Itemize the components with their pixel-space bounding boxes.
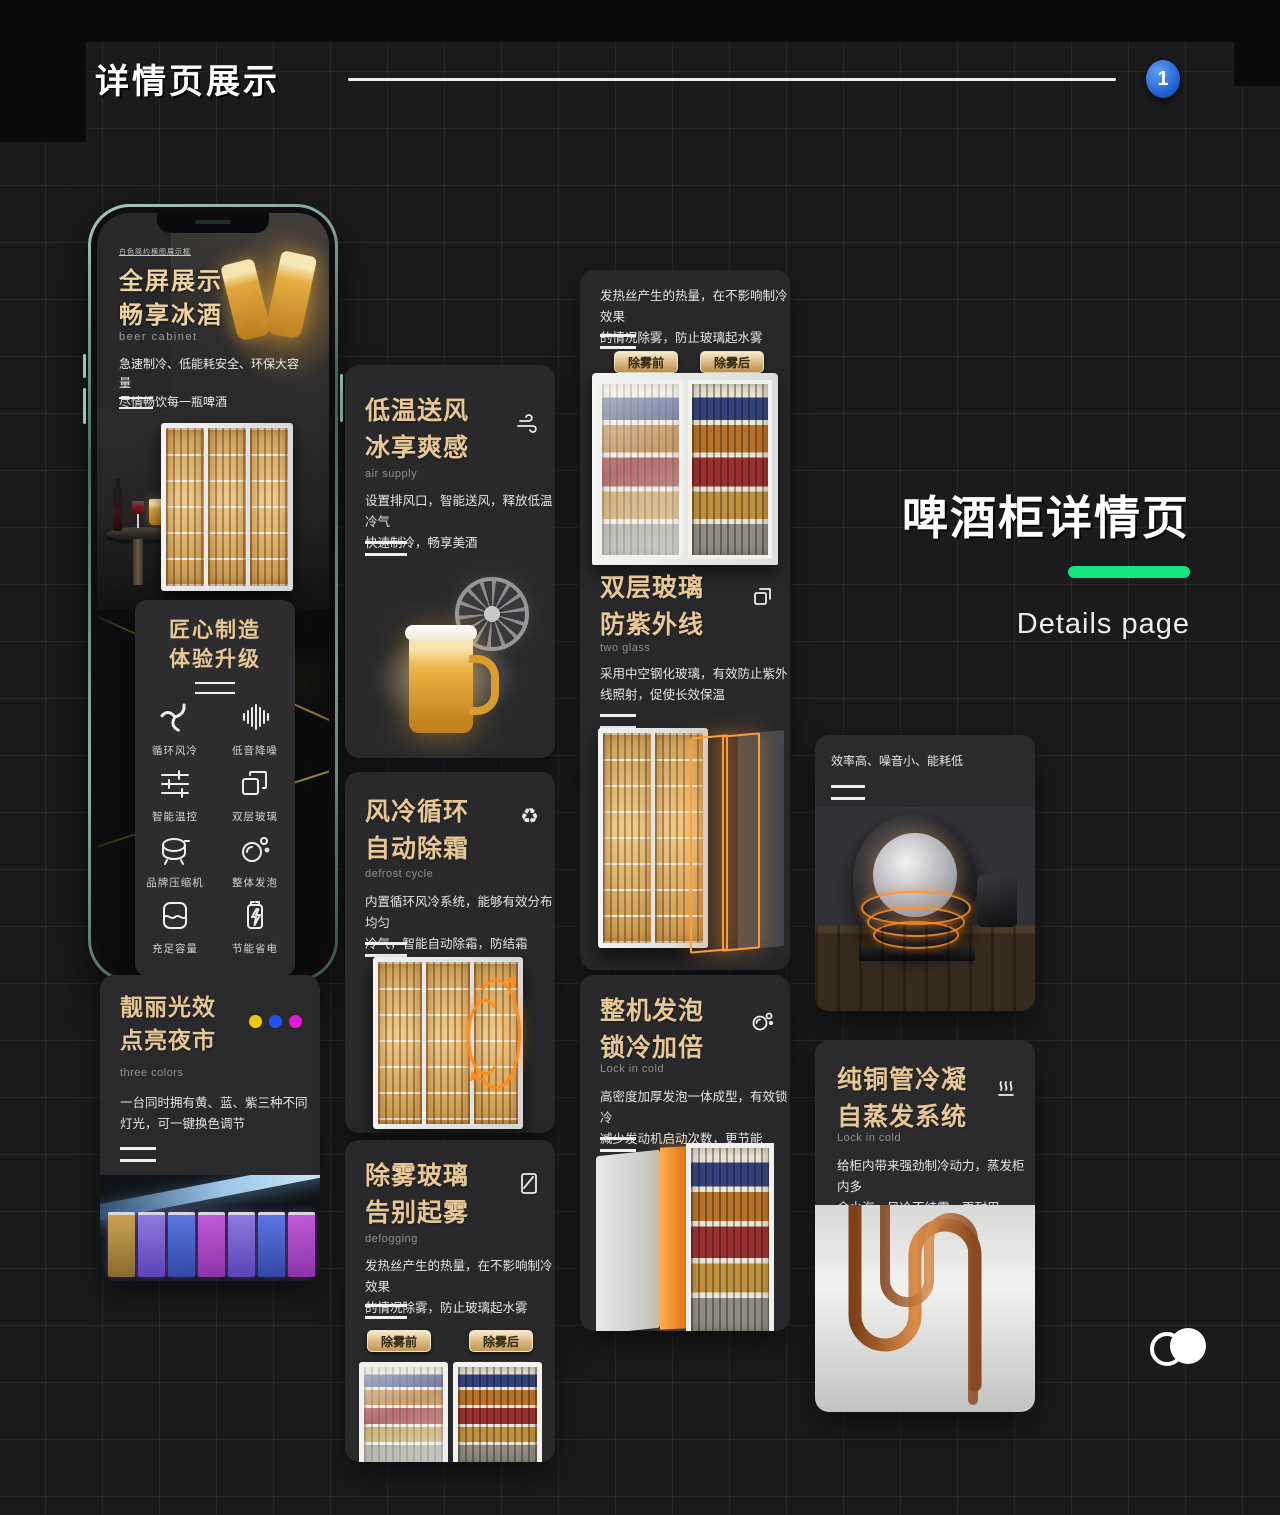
defog-before-button[interactable]: 除雾前 <box>614 351 678 373</box>
copper-pipe-scene <box>815 1205 1035 1412</box>
double-glass-icon <box>238 766 272 805</box>
blue-dot <box>269 1015 282 1028</box>
defog-after-button[interactable]: 除雾后 <box>700 351 764 373</box>
fridge-door <box>603 733 651 943</box>
cabinet-side-panel <box>596 1150 660 1331</box>
beer-mug <box>409 633 473 733</box>
copper-card-title: 纯铜管冷凝自蒸发系统 <box>837 1062 967 1136</box>
glass-section-title: 双层玻璃防紫外线 <box>600 570 704 644</box>
sound-bars-icon <box>238 700 272 739</box>
craft-card-title: 匠心制造体验升级 <box>135 616 295 674</box>
defrost-card-title: 风冷循环自动除霜 <box>365 794 469 868</box>
lit-fridge <box>108 1212 135 1277</box>
fridge-door <box>686 1143 774 1331</box>
lit-fridge <box>228 1212 255 1277</box>
recycle-icon: ♻ <box>520 804 539 829</box>
craft-features-card: 匠心制造体验升级 循环风冷 低音降噪 智能温控 双层玻璃 品牌压缩机 <box>135 600 295 976</box>
clear-door <box>688 380 773 559</box>
product-page-title: 啤酒柜详情页 <box>890 482 1190 548</box>
equals-divider <box>119 397 153 409</box>
section-number-badge: 1 <box>1146 60 1180 98</box>
fridge-door <box>208 428 246 586</box>
filled-circle-mark <box>1170 1328 1206 1364</box>
wine-glass <box>131 501 145 531</box>
compressor-scene <box>815 807 1035 1011</box>
clear-door <box>453 1362 542 1462</box>
equals-divider <box>195 682 235 694</box>
glass-pane-icon <box>519 1172 539 1201</box>
compressor-icon <box>158 832 192 871</box>
showcase-page: 详情页展示 1 啤酒柜详情页 Details page 白色简约横图展示框 全屏… <box>0 0 1280 1515</box>
equals-divider <box>365 541 407 556</box>
compressor-base <box>859 947 975 961</box>
air-supply-card: 低温送风冰享爽感 air supply 设置排风口，智能送风，释放低温冷气快速制… <box>345 365 555 758</box>
defog-comparison-fridge <box>592 373 778 565</box>
heat-ring <box>873 921 959 949</box>
corner-black-patch <box>0 42 86 142</box>
green-accent-bar <box>1068 566 1190 578</box>
compressor-caption: 效率高、噪音小、能耗低 <box>831 751 963 772</box>
uv-glass-scene <box>580 718 790 970</box>
fog-overlay <box>364 1367 443 1462</box>
yellow-dot <box>249 1015 262 1028</box>
fridge-door <box>426 962 470 1124</box>
phone-top-note: 白色简约横图展示框 <box>119 247 191 257</box>
foggy-door <box>598 380 683 559</box>
feature-item: 充足容量 <box>135 898 215 954</box>
door-glass <box>458 1367 537 1462</box>
defog-card-title: 除雾玻璃告别起雾 <box>365 1158 469 1232</box>
glass-section-body: 采用中空钢化玻璃，有效防止紫外线照射，促使长效保温 <box>600 664 788 706</box>
feature-item: 循环风冷 <box>135 700 215 756</box>
light-card-title: 靓丽光效点亮夜市 <box>120 991 216 1057</box>
light-effect-card: 靓丽光效点亮夜市 three colors 一台同时拥有黄、蓝、紫三种不同灯光，… <box>100 975 320 1281</box>
top-black-bar <box>0 0 1280 42</box>
product-page-subtitle: Details page <box>890 608 1190 641</box>
feature-item: 品牌压缩机 <box>135 832 215 888</box>
lit-fridge-row <box>108 1212 315 1277</box>
airflow-arrow <box>467 999 503 1075</box>
feature-item: 整体发泡 <box>215 832 295 888</box>
capacity-icon <box>158 898 192 937</box>
foam-card-subtitle: Lock in cold <box>600 1063 664 1075</box>
color-dots <box>249 1015 302 1028</box>
defog-comparison <box>359 1362 542 1462</box>
double-glass-icon <box>752 585 774 612</box>
phone-hero-subtitle: beer cabinet <box>119 331 198 343</box>
lit-fridge <box>138 1212 165 1277</box>
feature-item: 低音降噪 <box>215 700 295 756</box>
compressor-card: 效率高、噪音小、能耗低 <box>815 735 1035 1011</box>
sliders-icon <box>158 766 192 805</box>
glass-section-subtitle: two glass <box>600 642 650 654</box>
steam-icon <box>995 1080 1017 1107</box>
wine-bottle <box>113 487 122 531</box>
defog-card: 除雾玻璃告别起雾 defogging 发热丝产生的热量，在不影响制冷效果的情况除… <box>345 1140 555 1462</box>
defog-before-button[interactable]: 除雾前 <box>367 1330 431 1352</box>
fan-swirl-icon <box>158 700 192 739</box>
phone-notch <box>157 213 269 233</box>
door-glass <box>692 384 769 555</box>
phone-volume-button <box>83 354 86 378</box>
foggy-door <box>359 1362 448 1462</box>
copper-pipes-graphic <box>815 1205 1035 1412</box>
defog-card-subtitle: defogging <box>365 1233 418 1245</box>
fog-overlay <box>602 384 679 555</box>
compressor-side-unit <box>977 875 1017 927</box>
defrost-scene <box>345 955 555 1133</box>
orange-foam-layer <box>660 1146 686 1329</box>
bubbles-icon <box>238 832 272 871</box>
air-card-subtitle: air supply <box>365 468 417 480</box>
magenta-dot <box>289 1015 302 1028</box>
equals-divider <box>600 334 636 349</box>
corner-black-patch-right <box>1234 42 1280 86</box>
phone-hero-title: 全屏展示畅享冰酒 <box>119 265 223 333</box>
light-card-subtitle: three colors <box>120 1067 183 1079</box>
foam-layer-scene <box>580 1135 790 1331</box>
air-card-title: 低温送风冰享爽感 <box>365 393 469 467</box>
feature-item: 节能省电 <box>215 898 295 954</box>
foam-insulation-card: 整机发泡锁冷加倍 Lock in cold 高密度加厚发泡一体成型，有效锁冷减少… <box>580 975 790 1331</box>
equals-divider <box>365 1304 407 1319</box>
defrost-card-subtitle: defrost cycle <box>365 868 433 880</box>
fridge-door <box>250 428 288 586</box>
lit-fridge <box>258 1212 285 1277</box>
defog-after-button[interactable]: 除雾后 <box>469 1330 533 1352</box>
copper-pipe-card: 纯铜管冷凝自蒸发系统 Lock in cold 给柜内带来强劲制冷动力，蒸发柜内… <box>815 1040 1035 1412</box>
bubbles-icon <box>750 1011 774 1036</box>
lit-fridge <box>288 1212 315 1277</box>
beer-cabinet-scene <box>97 409 329 609</box>
lit-fridge <box>198 1212 225 1277</box>
foam-card-title: 整机发泡锁冷加倍 <box>600 993 704 1067</box>
feature-item: 双层玻璃 <box>215 766 295 822</box>
uv-glass-panel: 发热丝产生的热量，在不影响制冷效果的情况除雾，防止玻璃起水雾 除雾前 除雾后 双… <box>580 270 790 970</box>
equals-divider <box>120 1147 156 1162</box>
copper-card-subtitle: Lock in cold <box>837 1132 901 1144</box>
defrost-card: 风冷循环自动除霜 ♻ defrost cycle 内置循环风冷系统，能够有效分布… <box>345 772 555 1133</box>
fridge-door <box>378 962 422 1124</box>
phone-power-button <box>340 374 343 422</box>
equals-divider <box>831 785 865 800</box>
uv-glass-pane <box>722 732 760 951</box>
page-title: 详情页展示 <box>95 54 280 103</box>
battery-bolt-icon <box>238 898 272 937</box>
header-divider-line <box>348 78 1116 81</box>
feature-grid: 循环风冷 低音降噪 智能温控 双层玻璃 品牌压缩机 整体发泡 <box>135 700 295 954</box>
night-market-scene <box>100 1175 320 1281</box>
phone-volume-button-2 <box>83 388 86 424</box>
three-door-fridge <box>161 423 293 591</box>
light-card-body: 一台同时拥有黄、蓝、紫三种不同灯光，可一键换色调节 <box>120 1093 308 1135</box>
lit-fridge <box>168 1212 195 1277</box>
feature-item: 智能温控 <box>135 766 215 822</box>
fridge-door <box>166 428 204 586</box>
wind-icon <box>515 413 539 440</box>
